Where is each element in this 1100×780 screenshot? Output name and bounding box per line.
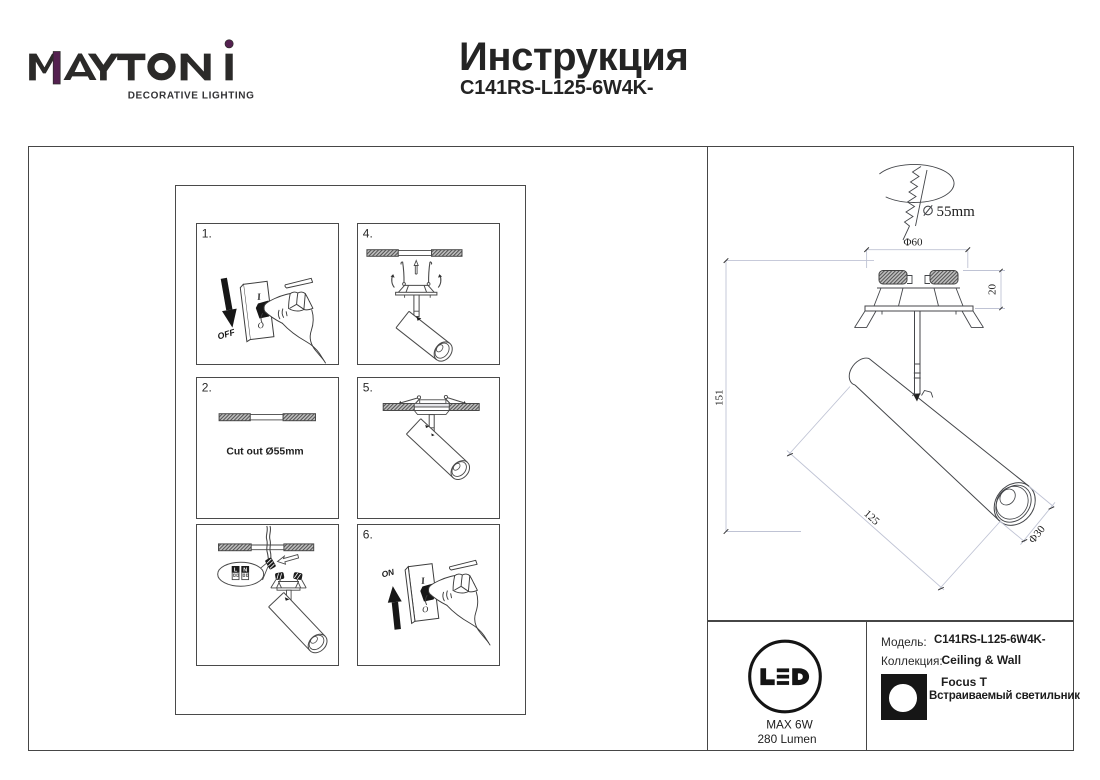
svg-text:125: 125: [861, 508, 882, 528]
svg-text:Φ30: Φ30: [1027, 523, 1049, 546]
svg-text:O: O: [422, 604, 429, 615]
svg-text:20: 20: [987, 284, 999, 296]
svg-text:4.: 4.: [363, 227, 373, 241]
svg-text:55mm: 55mm: [937, 204, 976, 220]
svg-text:ON: ON: [380, 566, 396, 579]
svg-text:DECORATIVE LIGHTING: DECORATIVE LIGHTING: [128, 91, 255, 102]
svg-text:O: O: [257, 320, 264, 331]
svg-text:5.: 5.: [363, 381, 373, 395]
svg-text:151: 151: [714, 390, 726, 407]
svg-text:1.: 1.: [202, 227, 212, 241]
svg-text:OFF: OFF: [216, 327, 236, 342]
svg-text:280 Lumen: 280 Lumen: [757, 732, 816, 746]
svg-text:6.: 6.: [363, 528, 373, 542]
svg-text:Cut out Ø55mm: Cut out Ø55mm: [226, 447, 303, 458]
svg-text:2.: 2.: [202, 381, 212, 395]
svg-text:MAX 6W: MAX 6W: [766, 718, 813, 732]
svg-text:Φ60: Φ60: [903, 237, 923, 249]
